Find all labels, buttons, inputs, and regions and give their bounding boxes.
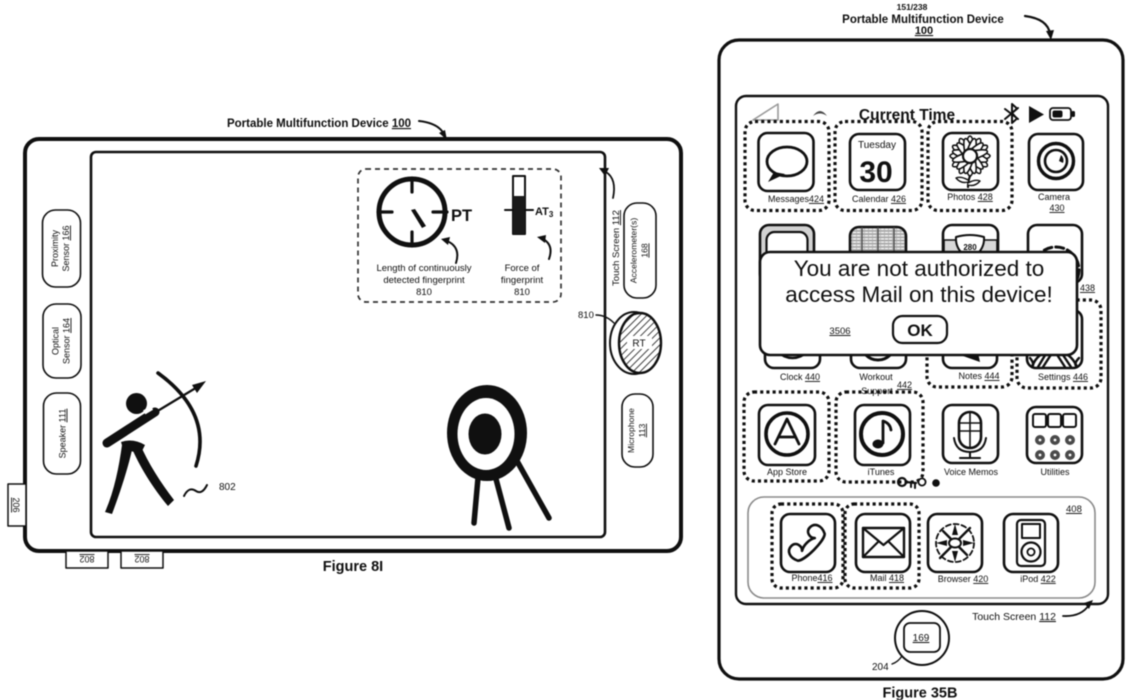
svg-text:Microphone: Microphone	[626, 408, 636, 453]
svg-text:113: 113	[637, 423, 647, 437]
svg-text:438: 438	[1080, 283, 1095, 293]
svg-text:810: 810	[578, 310, 594, 321]
svg-text:206: 206	[11, 497, 21, 512]
svg-text:Sensor 166: Sensor 166	[61, 225, 71, 271]
svg-text:iPod 422: iPod 422	[1020, 574, 1056, 584]
svg-text:Tuesday: Tuesday	[858, 140, 896, 151]
svg-text:You are not authorized to: You are not authorized to	[794, 256, 1045, 281]
svg-text:442: 442	[897, 380, 912, 390]
svg-text:RT: RT	[632, 339, 645, 350]
svg-text:430: 430	[1049, 203, 1064, 213]
svg-text:802: 802	[79, 554, 94, 564]
svg-text:Figure 8I: Figure 8I	[323, 559, 383, 575]
svg-text:Phone416: Phone416	[791, 573, 832, 583]
svg-text:Notes 444: Notes 444	[958, 371, 999, 381]
svg-text:3506: 3506	[829, 326, 850, 337]
svg-text:detected fingerprint: detected fingerprint	[383, 275, 465, 286]
svg-text:Utilities: Utilities	[1040, 467, 1070, 477]
svg-text:Workout: Workout	[859, 372, 893, 382]
svg-text:802: 802	[219, 482, 236, 493]
svg-text:Clock 440: Clock 440	[780, 372, 820, 382]
svg-text:Voice Memos: Voice Memos	[944, 467, 999, 477]
svg-text:30: 30	[859, 156, 892, 189]
svg-text:168: 168	[640, 243, 650, 258]
svg-text:Figure 35B: Figure 35B	[883, 686, 958, 700]
svg-text:Accelerometer(s): Accelerometer(s)	[629, 218, 639, 284]
svg-text:Messages424: Messages424	[768, 194, 824, 204]
svg-text:204: 204	[872, 662, 889, 673]
svg-text:Photos 428: Photos 428	[947, 192, 993, 202]
svg-text:Force of: Force of	[505, 263, 540, 274]
svg-text:100: 100	[915, 25, 933, 37]
svg-text:access Mail on this device!: access Mail on this device!	[785, 282, 1053, 307]
svg-text:App Store: App Store	[767, 467, 807, 477]
svg-text:Calendar 426: Calendar 426	[852, 194, 906, 204]
svg-text:810: 810	[416, 287, 432, 298]
svg-text:802: 802	[134, 554, 149, 564]
svg-text:Browser 420: Browser 420	[938, 574, 989, 584]
svg-text:PT: PT	[451, 207, 472, 225]
svg-text:Touch Screen 112: Touch Screen 112	[611, 210, 622, 286]
svg-text:Proximity: Proximity	[50, 230, 60, 268]
svg-text:Touch Screen 112: Touch Screen 112	[972, 611, 1056, 623]
svg-text:fingerprint: fingerprint	[501, 275, 544, 286]
svg-text:169: 169	[913, 633, 930, 644]
svg-text:iTunes: iTunes	[868, 467, 895, 477]
svg-text:Speaker 111: Speaker 111	[58, 409, 68, 459]
svg-text:Settings 446: Settings 446	[1038, 372, 1088, 382]
svg-text:280: 280	[963, 243, 977, 252]
svg-text:Mail 418: Mail 418	[870, 573, 904, 583]
svg-text:Camera: Camera	[1038, 192, 1070, 202]
svg-text:151/238: 151/238	[897, 2, 928, 12]
svg-text:Length of continuously: Length of continuously	[376, 263, 471, 274]
svg-text:OK: OK	[907, 321, 933, 340]
svg-text:Sensor 164: Sensor 164	[62, 318, 72, 364]
svg-text:810: 810	[514, 287, 530, 298]
svg-text:Portable Multifunction Device: Portable Multifunction Device 100	[227, 118, 411, 130]
svg-text:408: 408	[1066, 504, 1082, 515]
svg-text:Optical: Optical	[51, 327, 61, 355]
